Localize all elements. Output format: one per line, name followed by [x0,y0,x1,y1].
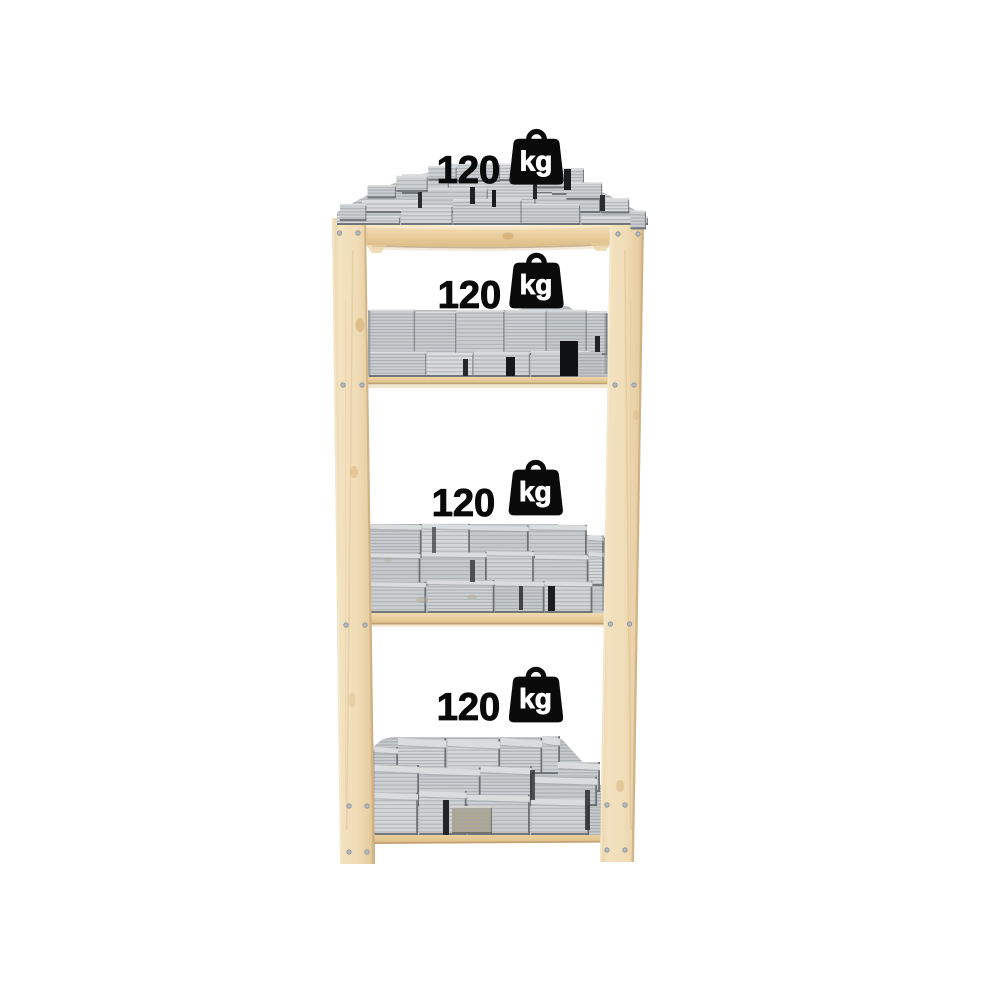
svg-text:kg: kg [520,269,553,300]
svg-text:120: 120 [437,686,500,729]
svg-text:120: 120 [437,149,500,192]
svg-text:kg: kg [520,145,553,176]
svg-text:120: 120 [432,482,495,525]
svg-text:120: 120 [438,274,501,317]
svg-text:kg: kg [519,476,552,507]
svg-text:kg: kg [519,683,552,714]
